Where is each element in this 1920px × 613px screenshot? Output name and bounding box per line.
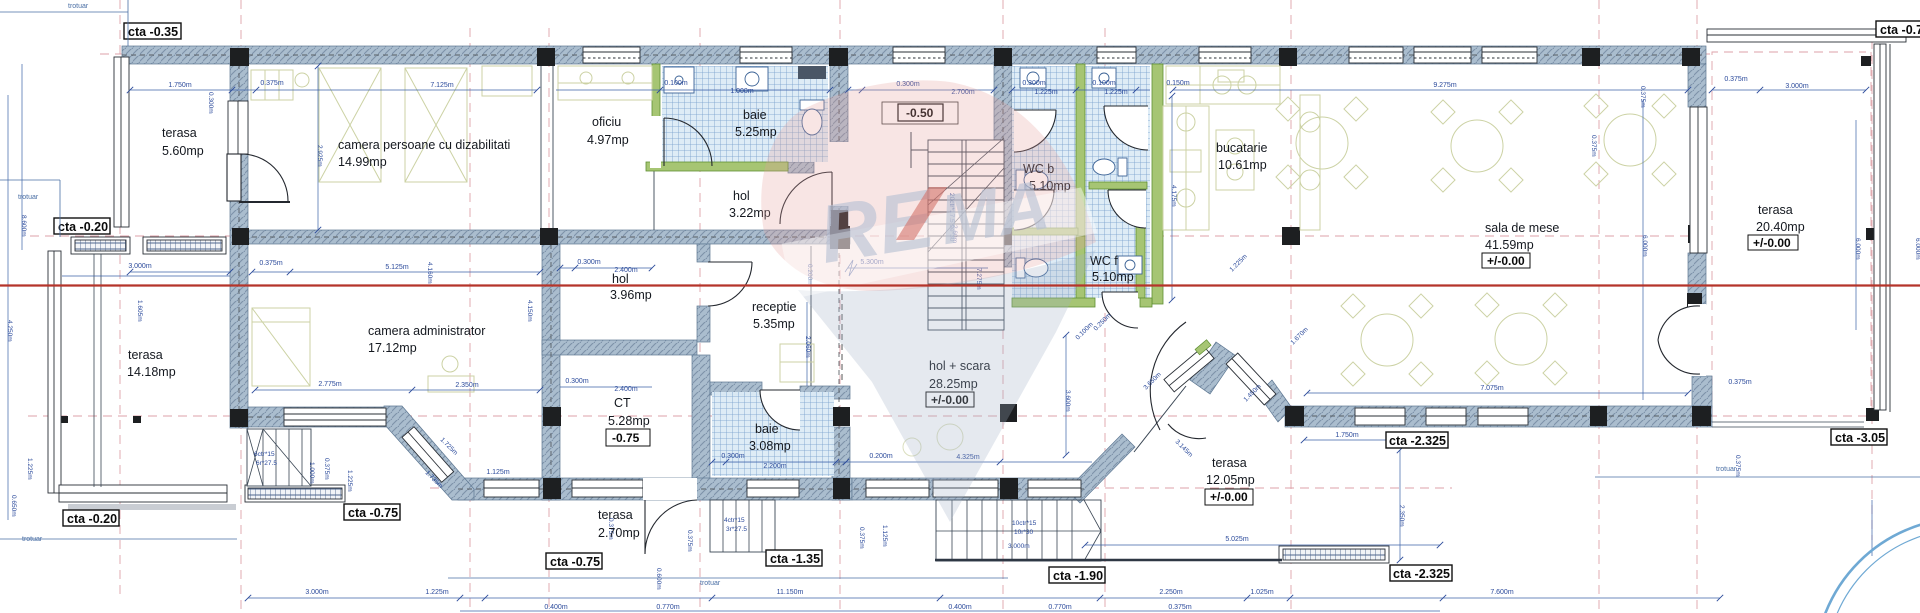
svg-text:3.08mp: 3.08mp bbox=[749, 439, 791, 453]
svg-text:terasa: terasa bbox=[1758, 203, 1793, 217]
svg-text:WC f: WC f bbox=[1090, 254, 1118, 268]
svg-text:1.225m: 1.225m bbox=[1104, 89, 1128, 96]
svg-text:3.000m: 3.000m bbox=[1008, 543, 1030, 550]
svg-text:41.59mp: 41.59mp bbox=[1485, 238, 1534, 252]
svg-text:0.300m: 0.300m bbox=[207, 92, 214, 114]
svg-text:2.775m: 2.775m bbox=[318, 381, 342, 388]
svg-text:cta -0.75: cta -0.75 bbox=[550, 555, 600, 569]
svg-text:0.375m: 0.375m bbox=[686, 530, 693, 552]
svg-text:terasa: terasa bbox=[162, 126, 197, 140]
svg-text:1.225m: 1.225m bbox=[26, 458, 33, 480]
svg-text:1.225m: 1.225m bbox=[1034, 89, 1058, 96]
svg-text:trotuar: trotuar bbox=[18, 194, 39, 201]
svg-text:receptie: receptie bbox=[752, 300, 797, 314]
svg-text:cta -0.7: cta -0.7 bbox=[1880, 23, 1920, 37]
svg-text:4ctr*15: 4ctr*15 bbox=[724, 517, 745, 524]
svg-text:2.060m: 2.060m bbox=[804, 336, 811, 358]
svg-text:camera persoane cu dizabilitat: camera persoane cu dizabilitati bbox=[338, 138, 510, 152]
svg-text:-0.75: -0.75 bbox=[612, 431, 640, 445]
svg-text:2.400m: 2.400m bbox=[614, 386, 638, 393]
svg-text:3r*27.5: 3r*27.5 bbox=[726, 526, 747, 533]
svg-text:2.925m: 2.925m bbox=[316, 145, 323, 167]
svg-text:trotuar: trotuar bbox=[700, 580, 721, 587]
svg-text:3.000m: 3.000m bbox=[305, 589, 329, 596]
svg-text:7.600m: 7.600m bbox=[1490, 589, 1514, 596]
svg-text:1.000m: 1.000m bbox=[308, 462, 315, 484]
svg-text:17.12mp: 17.12mp bbox=[368, 341, 417, 355]
svg-text:3.600m: 3.600m bbox=[1064, 390, 1071, 412]
svg-text:14.99mp: 14.99mp bbox=[338, 155, 387, 169]
svg-text:10r*30: 10r*30 bbox=[1014, 529, 1034, 536]
svg-text:0.375m: 0.375m bbox=[1168, 604, 1192, 611]
svg-text:1.125m: 1.125m bbox=[486, 469, 510, 476]
svg-text:hol: hol bbox=[612, 272, 629, 286]
svg-text:1.000m: 1.000m bbox=[730, 88, 754, 95]
svg-text:CT: CT bbox=[614, 396, 631, 410]
svg-text:1.225m: 1.225m bbox=[346, 470, 353, 492]
svg-text:2.70mp: 2.70mp bbox=[598, 526, 640, 540]
svg-text:RE: RE bbox=[813, 173, 942, 281]
svg-text:5.28mp: 5.28mp bbox=[608, 414, 650, 428]
svg-text:0.770m: 0.770m bbox=[1048, 604, 1072, 611]
svg-text:+/-0.00: +/-0.00 bbox=[1210, 490, 1248, 504]
svg-text:bucatarie: bucatarie bbox=[1216, 141, 1267, 155]
svg-text:+/-0.00: +/-0.00 bbox=[1753, 236, 1791, 250]
svg-text:11.150m: 11.150m bbox=[777, 589, 804, 596]
svg-text:cta -3.05: cta -3.05 bbox=[1835, 431, 1885, 445]
svg-text:oficiu: oficiu bbox=[592, 115, 621, 129]
svg-text:1.025m: 1.025m bbox=[1250, 589, 1274, 596]
svg-text:cta -0.75: cta -0.75 bbox=[348, 506, 398, 520]
svg-text:1.225m: 1.225m bbox=[425, 589, 449, 596]
svg-text:0.100m: 0.100m bbox=[1092, 80, 1116, 87]
svg-text:2.200m: 2.200m bbox=[763, 463, 787, 470]
svg-text:5.25mp: 5.25mp bbox=[735, 125, 777, 139]
svg-text:10.61mp: 10.61mp bbox=[1218, 158, 1267, 172]
svg-text:4.160m: 4.160m bbox=[426, 262, 433, 284]
svg-text:+/-0.00: +/-0.00 bbox=[1487, 254, 1525, 268]
svg-text:trotuar: trotuar bbox=[1716, 466, 1737, 473]
svg-text:cta -1.90: cta -1.90 bbox=[1053, 569, 1103, 583]
svg-text:8.600m: 8.600m bbox=[20, 215, 27, 237]
svg-text:0.600m: 0.600m bbox=[655, 568, 662, 590]
svg-text:14.18mp: 14.18mp bbox=[127, 365, 176, 379]
svg-text:0.300m: 0.300m bbox=[1022, 80, 1046, 87]
svg-text:cta -0.20: cta -0.20 bbox=[67, 512, 117, 526]
svg-text:2.350m: 2.350m bbox=[1398, 505, 1405, 527]
svg-text:0.100m: 0.100m bbox=[664, 80, 688, 87]
svg-text:2.350m: 2.350m bbox=[455, 382, 479, 389]
svg-text:0.770m: 0.770m bbox=[656, 604, 680, 611]
svg-text:7.125m: 7.125m bbox=[430, 82, 454, 89]
svg-text:3.000m: 3.000m bbox=[128, 263, 152, 270]
svg-text:0.375m: 0.375m bbox=[1639, 86, 1646, 108]
svg-text:0.300m: 0.300m bbox=[577, 259, 601, 266]
svg-text:1.750m: 1.750m bbox=[1335, 432, 1359, 439]
svg-text:trotuar: trotuar bbox=[68, 3, 89, 10]
svg-text:0.300m: 0.300m bbox=[721, 453, 745, 460]
svg-text:terasa: terasa bbox=[598, 508, 633, 522]
svg-text:6ctr*15: 6ctr*15 bbox=[254, 451, 275, 458]
svg-text:baie: baie bbox=[743, 108, 767, 122]
svg-text:0.400m: 0.400m bbox=[544, 604, 568, 611]
svg-text:12.05mp: 12.05mp bbox=[1206, 473, 1255, 487]
svg-text:cta -2.325: cta -2.325 bbox=[1393, 567, 1450, 581]
svg-text:3.000m: 3.000m bbox=[1785, 83, 1809, 90]
svg-text:sala de mese: sala de mese bbox=[1485, 221, 1559, 235]
svg-text:1.750m: 1.750m bbox=[168, 82, 192, 89]
svg-text:6.000m: 6.000m bbox=[1854, 238, 1861, 260]
svg-text:5.125m: 5.125m bbox=[385, 264, 409, 271]
svg-text:baie: baie bbox=[755, 422, 779, 436]
svg-text:cta -0.35: cta -0.35 bbox=[128, 25, 178, 39]
svg-text:trotuar: trotuar bbox=[22, 536, 43, 543]
svg-text:0.375m: 0.375m bbox=[260, 80, 284, 87]
svg-text:3.96mp: 3.96mp bbox=[610, 288, 652, 302]
svg-text:terasa: terasa bbox=[128, 348, 163, 362]
svg-text:20.40mp: 20.40mp bbox=[1756, 220, 1805, 234]
svg-text:5.10mp: 5.10mp bbox=[1092, 270, 1134, 284]
svg-text:2.250m: 2.250m bbox=[1159, 589, 1183, 596]
svg-text:1.605m: 1.605m bbox=[136, 300, 143, 322]
svg-text:9.275m: 9.275m bbox=[1433, 82, 1457, 89]
svg-text:0.375m: 0.375m bbox=[1724, 76, 1748, 83]
svg-text:0.375m: 0.375m bbox=[858, 527, 865, 549]
svg-text:hol: hol bbox=[733, 189, 750, 203]
svg-text:0.300m: 0.300m bbox=[565, 378, 589, 385]
svg-text:6.000m: 6.000m bbox=[1914, 238, 1920, 260]
svg-text:10ctr*15: 10ctr*15 bbox=[1012, 520, 1037, 527]
svg-text:6.000m: 6.000m bbox=[1641, 235, 1648, 257]
svg-text:cta -1.35: cta -1.35 bbox=[770, 552, 820, 566]
svg-text:5.60mp: 5.60mp bbox=[162, 144, 204, 158]
svg-text:5.025m: 5.025m bbox=[1225, 536, 1249, 543]
svg-text:4.250m: 4.250m bbox=[6, 320, 13, 342]
svg-text:4.97mp: 4.97mp bbox=[587, 133, 629, 147]
svg-text:0.375m: 0.375m bbox=[323, 458, 330, 480]
svg-text:camera administrator: camera administrator bbox=[368, 324, 485, 338]
svg-text:0.200m: 0.200m bbox=[869, 453, 893, 460]
svg-text:0.375m: 0.375m bbox=[259, 260, 283, 267]
svg-text:1.125m: 1.125m bbox=[881, 525, 888, 547]
svg-text:4.175m: 4.175m bbox=[1170, 185, 1177, 207]
svg-text:cta -2.325: cta -2.325 bbox=[1389, 434, 1446, 448]
svg-text:4.150m: 4.150m bbox=[526, 300, 533, 322]
svg-text:6r*27.5: 6r*27.5 bbox=[256, 460, 277, 467]
svg-text:0.375m: 0.375m bbox=[1590, 135, 1597, 157]
svg-text:0.400m: 0.400m bbox=[948, 604, 972, 611]
svg-text:0.150m: 0.150m bbox=[1166, 80, 1190, 87]
svg-text:0.375m: 0.375m bbox=[1728, 379, 1752, 386]
svg-text:5.35mp: 5.35mp bbox=[753, 317, 795, 331]
svg-text:cta -0.20: cta -0.20 bbox=[58, 220, 108, 234]
svg-text:0.650m: 0.650m bbox=[10, 495, 17, 517]
svg-text:terasa: terasa bbox=[1212, 456, 1247, 470]
svg-text:7.075m: 7.075m bbox=[1480, 385, 1504, 392]
